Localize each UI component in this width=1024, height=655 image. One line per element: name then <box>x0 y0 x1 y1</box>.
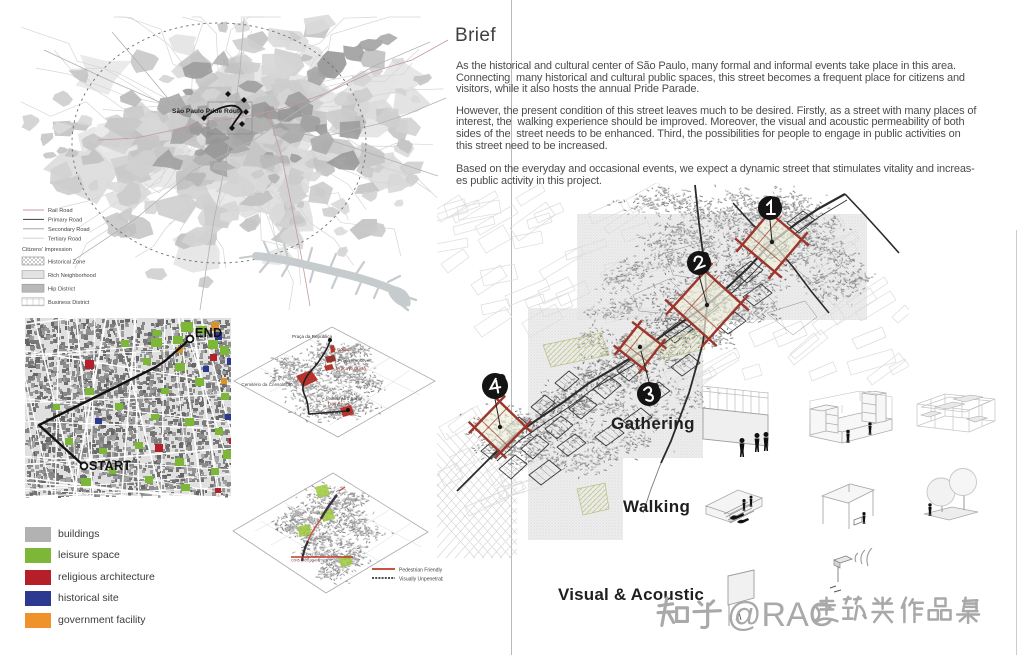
svg-text:São Paulo Pride Route: São Paulo Pride Route <box>172 108 243 115</box>
svg-text:Tertiary Road: Tertiary Road <box>48 236 81 242</box>
svg-text:Praça da República: Praça da República <box>292 334 333 339</box>
svg-text:Primary Road: Primary Road <box>48 218 82 224</box>
svg-text:Dos Reais: Dos Reais <box>328 402 350 407</box>
svg-text:Hip District: Hip District <box>48 287 75 293</box>
svg-text:Business District: Business District <box>48 300 90 306</box>
svg-text:Rich Neighborhood: Rich Neighborhood <box>48 273 96 279</box>
svg-text:Copan: Copan <box>337 347 351 352</box>
svg-text:Museu Afro Sal of: Museu Afro Sal of <box>326 396 363 401</box>
svg-text:Praça Augusta: Praça Augusta <box>336 366 366 371</box>
svg-text:Citizens’ Impression: Citizens’ Impression <box>22 247 72 253</box>
svg-text:Trianon Park: Trianon Park <box>315 410 342 415</box>
svg-text:Pedestrian Friendly: Pedestrian Friendly <box>399 568 443 574</box>
svg-text:@RAC: @RAC <box>727 596 833 634</box>
svg-text:Praça Roosevelt: Praça Roosevelt <box>338 358 372 363</box>
svg-text:END: END <box>195 326 222 340</box>
svg-text:Cemitério da Consolação: Cemitério da Consolação <box>241 382 293 387</box>
svg-text:Visually Unpenetrable: Visually Unpenetrable <box>399 577 443 583</box>
svg-text:C0N5 L4D0 0C40PT10N: C0N5 L4D0 0C40PT10N <box>291 559 329 563</box>
svg-text:Historical Zone: Historical Zone <box>48 259 85 265</box>
svg-text:START: START <box>89 459 131 473</box>
svg-text:Rail Road: Rail Road <box>48 208 73 214</box>
svg-text:Secondary Road: Secondary Road <box>48 227 90 233</box>
